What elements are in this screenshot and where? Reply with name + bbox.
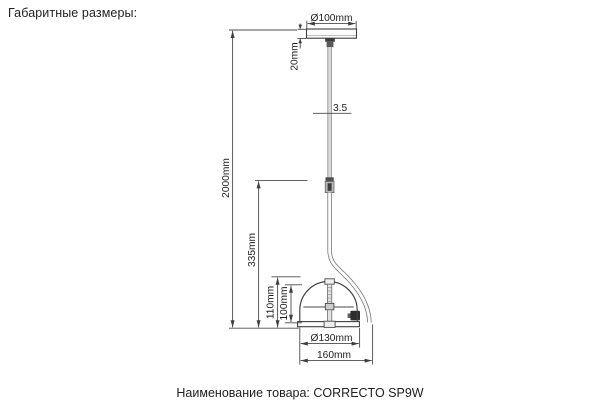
dimension-canopy-height: 20mm [289,24,306,71]
lamp-shade [298,279,360,328]
cable-connector [325,178,334,193]
dim-label-cable-diameter: 3.5 [333,103,347,114]
rod-core [330,193,370,323]
bracket-block [350,311,360,321]
product-caption: Наименование товара: CORRECTO SP9W [0,386,600,400]
connector-slot [328,183,332,191]
ceiling-canopy [307,29,357,38]
dimension-overall-width: 160mm [301,325,373,365]
dim-label-shade-diameter: Ø130mm [311,333,353,344]
stem-upper [327,284,331,303]
cord-grip [325,38,335,47]
dim-label-drop-to-shade: 335mm [247,233,258,267]
dim-label-shade-inner-height: 100mm [279,287,290,321]
arrowhead [298,25,302,30]
canopy-plate [307,29,357,38]
dimension-canopy-diameter: Ø100mm [307,13,356,29]
dim-label-shade-outer-height: 110mm [266,286,277,319]
connector-cap [326,178,334,182]
rod-bracket [348,311,360,321]
dim-label-suspension-length: 2000mm [221,158,232,198]
dimension-drawing: Ø100mm 20mm 3.5 [0,0,600,414]
dimension-cable-diameter: 3.5 [313,103,352,114]
lamp-socket [324,321,335,327]
dimension-total-length: 2000mm [221,30,299,328]
product-caption-label: Наименование товара: [176,386,310,400]
cord-grip-cap [325,38,335,42]
dim-label-canopy-diameter: Ø100mm [311,13,353,24]
dim-label-canopy-height: 20mm [289,42,300,70]
stem-lower [327,310,331,322]
stem-top-cap [325,279,334,284]
bracket-knob [348,313,351,318]
page: Габаритные размеры: Ø100mm 20mm [0,0,600,414]
dimension-shade-inner-height: 100mm [279,285,302,323]
product-name: CORRECTO SP9W [313,386,423,400]
cord-grip-body [327,42,334,47]
stem-collar [325,303,334,309]
dim-label-overall-width: 160mm [317,350,351,361]
curved-rod [330,193,370,323]
